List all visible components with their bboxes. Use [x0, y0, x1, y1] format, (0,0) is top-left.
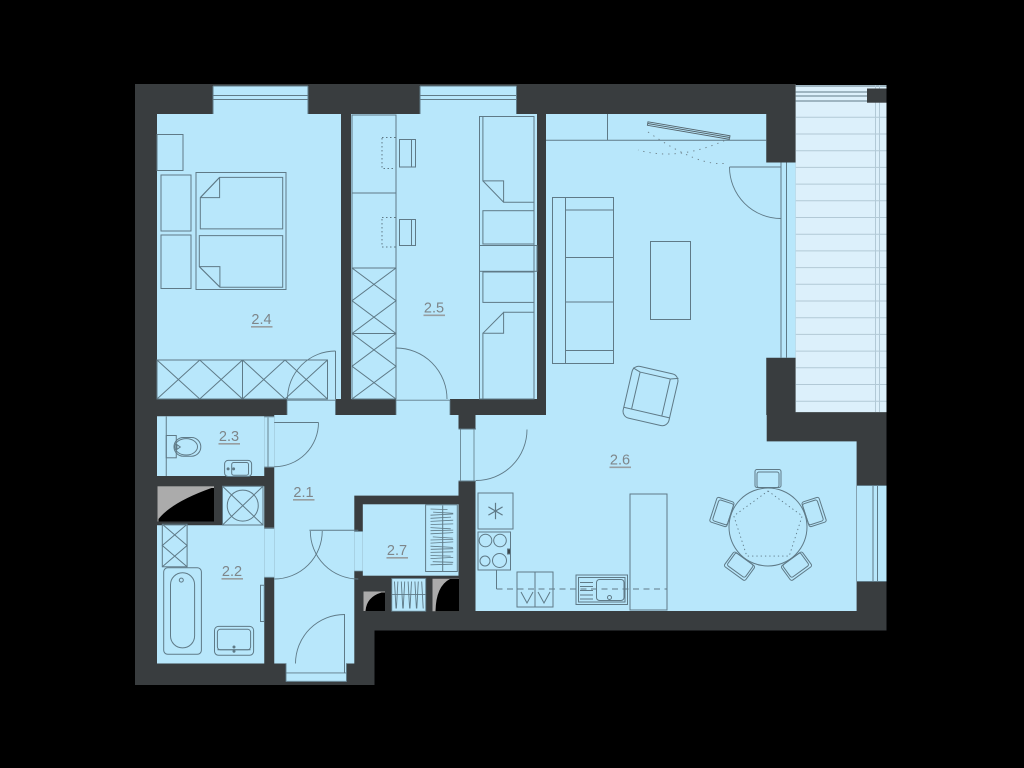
svg-text:2.4: 2.4	[251, 312, 271, 328]
svg-text:2.6: 2.6	[610, 452, 630, 468]
svg-text:2.3: 2.3	[219, 429, 239, 445]
svg-text:2.7: 2.7	[387, 543, 407, 559]
svg-text:2.5: 2.5	[424, 300, 444, 316]
svg-text:2.2: 2.2	[222, 564, 242, 580]
svg-text:2.1: 2.1	[293, 485, 313, 501]
